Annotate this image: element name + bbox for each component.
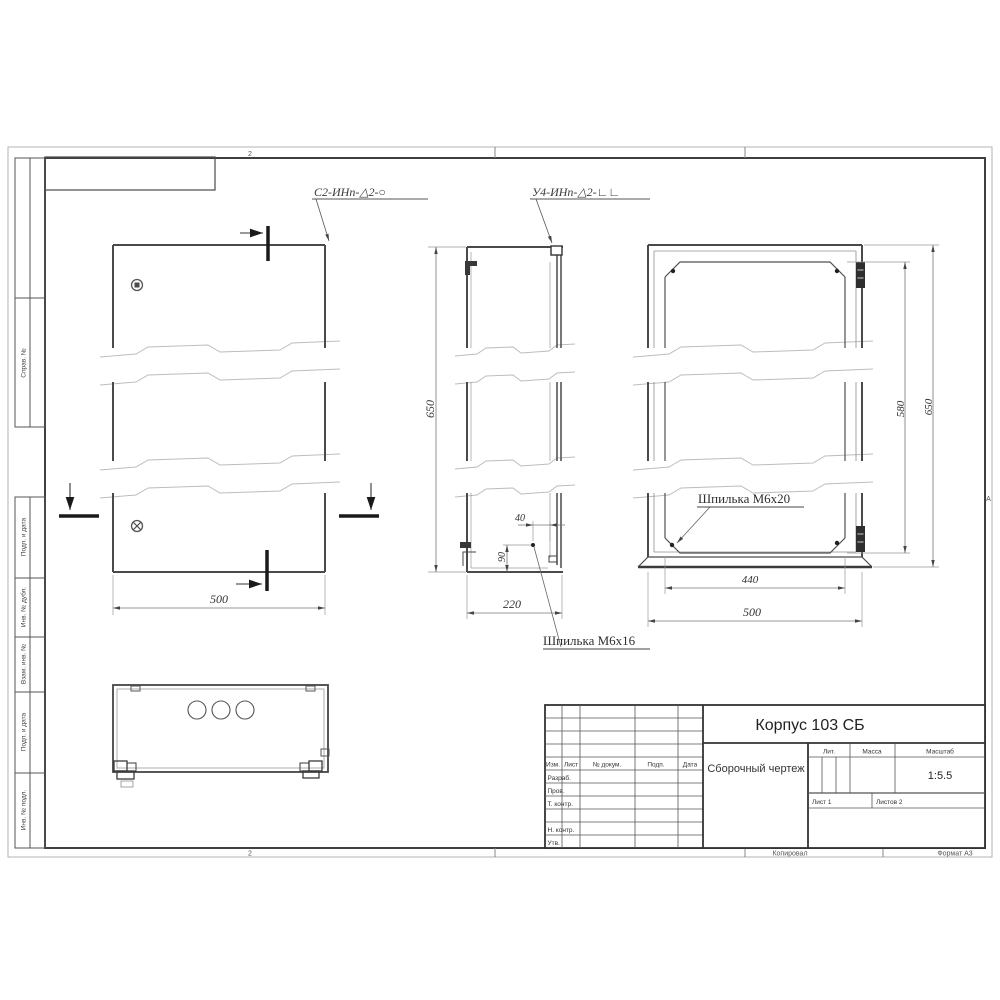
drawing-page: 2 2 А Копировал Формат А3 Справ. № Подп.… bbox=[0, 0, 1000, 1000]
hinge-icon-back-top bbox=[856, 262, 865, 288]
stamp-sprav: Справ. № bbox=[21, 348, 28, 378]
dim-stud-offset-x-value: 40 bbox=[515, 513, 525, 524]
drawing-canvas: 2 2 А Копировал Формат А3 Справ. № Подп.… bbox=[0, 0, 1000, 1000]
stamp-inv-dubl: Инв. № дубл. bbox=[20, 587, 28, 627]
sheet-info: Лист 1 bbox=[812, 799, 832, 806]
stud-dot-back bbox=[671, 269, 675, 273]
stamp-vzam-inv: Взам. инв. № bbox=[21, 644, 28, 684]
row-tkontr: Т. контр. bbox=[548, 801, 574, 808]
stud-dot-side bbox=[531, 543, 535, 547]
stud-back-label: Шпилька М6х20 bbox=[698, 491, 790, 506]
dim-back-inner-height-value: 580 bbox=[895, 400, 907, 417]
row-utv: Утв. bbox=[548, 840, 561, 847]
title-designation: Корпус 103 СБ bbox=[755, 717, 864, 734]
stud-dot-back bbox=[670, 543, 674, 547]
title-block: Корпус 103 СБ Сборочный чертеж Лит. Масс… bbox=[545, 705, 985, 848]
dim-front-width-value: 500 bbox=[210, 592, 228, 606]
hinge-icon-back-bottom bbox=[856, 526, 865, 552]
weld-1-label: С2-ИНп-△2-○ bbox=[314, 185, 386, 199]
kopiroval-label: Копировал bbox=[772, 851, 807, 858]
col-list: Лист bbox=[564, 762, 578, 769]
dim-side-height-value: 650 bbox=[423, 400, 437, 418]
dim-back-width-value: 500 bbox=[743, 605, 761, 619]
title-doc-type: Сборочный чертеж bbox=[707, 763, 805, 775]
col-izm: Изм. bbox=[546, 762, 560, 769]
dim-back-height-value: 650 bbox=[923, 398, 935, 415]
scale-value: 1:5.5 bbox=[928, 770, 952, 782]
dim-side-depth-value: 220 bbox=[503, 597, 521, 611]
stud-dot-back bbox=[835, 541, 839, 545]
dim-stud-offset-y-value: 90 bbox=[497, 552, 508, 562]
row-razrab: Разраб. bbox=[548, 774, 572, 782]
row-nkontr: Н. контр. bbox=[548, 827, 575, 834]
weld-2-label: У4-ИНп-△2-∟∟ bbox=[532, 185, 620, 199]
stamp-podp-data-1: Подп. и дата bbox=[21, 517, 28, 556]
stud-dot-back bbox=[835, 269, 839, 273]
col-doc: № докум. bbox=[593, 762, 622, 769]
col-data: Дата bbox=[683, 762, 698, 769]
row-prov: Пров. bbox=[548, 788, 565, 795]
dim-back-inner-width-value: 440 bbox=[742, 574, 759, 586]
lit-label: Лит. bbox=[823, 749, 835, 756]
scale-label: Масштаб bbox=[926, 748, 954, 756]
format-label: Формат А3 bbox=[937, 851, 972, 858]
zone-number-top: 2 bbox=[248, 151, 252, 158]
mass-label: Масса bbox=[862, 749, 882, 756]
stud-side-label: Шпилька М6х16 bbox=[543, 633, 636, 648]
hinge-icon-side-top bbox=[551, 246, 562, 255]
zone-letter-right: А bbox=[986, 496, 991, 503]
zone-number-bottom: 2 bbox=[248, 851, 252, 858]
sheets-info: Листов 2 bbox=[876, 799, 903, 806]
stamp-podp-data-2: Подп. и дата bbox=[21, 712, 28, 751]
col-podp: Подп. bbox=[647, 762, 664, 769]
stamp-inv-podl: Инв. № подл. bbox=[21, 790, 28, 831]
